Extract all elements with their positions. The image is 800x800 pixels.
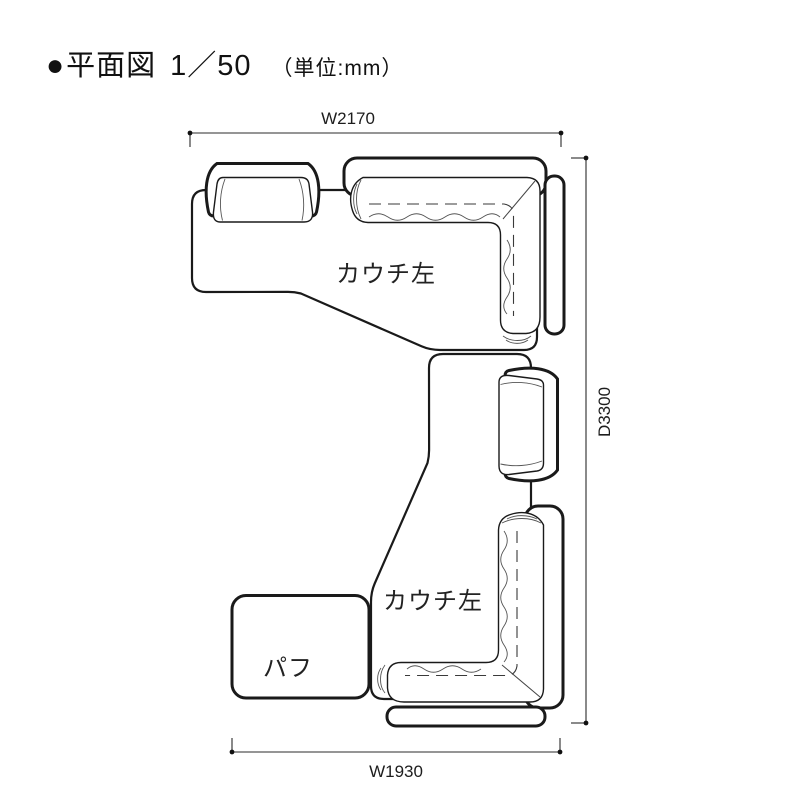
dimension-bottom-label: W1930 — [369, 762, 423, 781]
floor-plan-drawing: カウチ左 カウチ左 パフ W2170 D3300 W1930 — [0, 0, 800, 800]
upper-couch-label: カウチ左 — [336, 261, 436, 288]
dimension-bottom: W1930 — [230, 738, 563, 781]
pouf — [232, 596, 369, 699]
dimension-top-label: W2170 — [321, 109, 375, 128]
dimension-right: D3300 — [571, 156, 614, 726]
lower-couch-label: カウチ左 — [383, 588, 483, 615]
pouf-label: パフ — [263, 655, 313, 682]
dimension-right-label: D3300 — [595, 387, 614, 437]
lower-couch — [371, 354, 563, 726]
dimension-top: W2170 — [188, 109, 564, 147]
upper-couch — [192, 158, 564, 350]
